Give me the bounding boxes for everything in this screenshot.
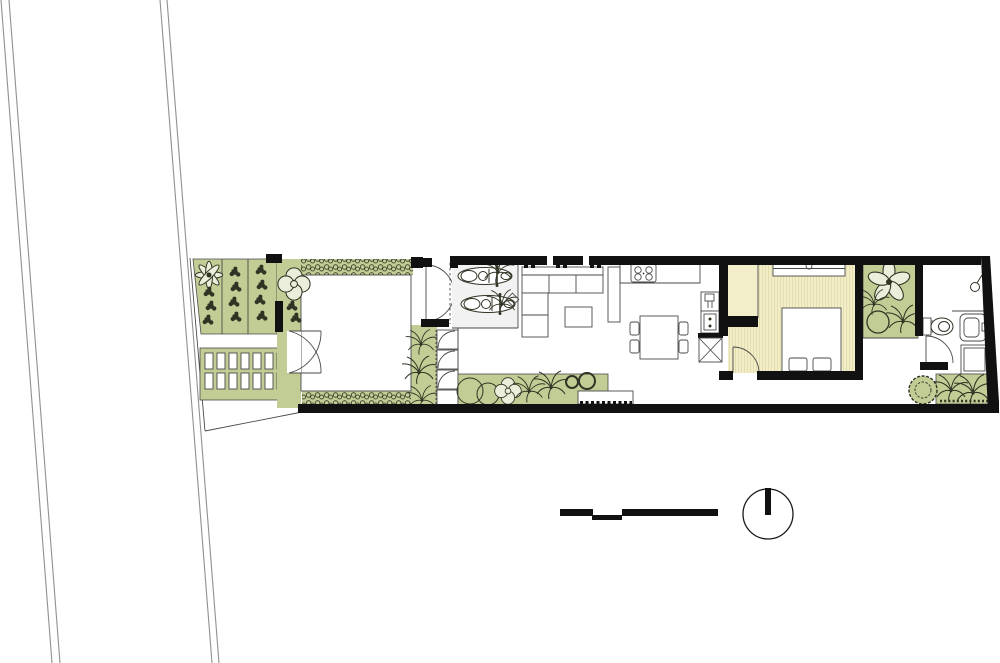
dining-chair bbox=[630, 322, 639, 335]
service-shaft bbox=[698, 333, 723, 362]
north-arrow-needle bbox=[765, 488, 771, 515]
dining-set bbox=[630, 316, 688, 359]
road-edges bbox=[1, 0, 219, 663]
cooktop-icon bbox=[631, 264, 656, 282]
kitchen-counter bbox=[620, 264, 700, 283]
dining-chair bbox=[679, 322, 688, 335]
scale-bar-segment bbox=[592, 515, 622, 520]
scooter-parking bbox=[452, 257, 519, 374]
bedroom-right-wall bbox=[855, 256, 863, 380]
kitchen bbox=[620, 264, 723, 362]
planter-strip bbox=[457, 371, 633, 405]
back-garden bbox=[909, 374, 997, 405]
road-edge-line bbox=[9, 0, 60, 663]
bedroom-bottom-wall bbox=[757, 371, 863, 380]
shower-tray bbox=[961, 345, 988, 374]
dining-table bbox=[640, 316, 678, 359]
flower-bed bbox=[193, 259, 277, 334]
bathroom-left-wall bbox=[915, 256, 923, 336]
faucet-unit bbox=[701, 292, 719, 311]
north-arrow bbox=[743, 488, 793, 539]
bottom-wall bbox=[298, 404, 999, 413]
coffee-table bbox=[565, 307, 592, 327]
entry-screen bbox=[437, 330, 458, 405]
hedge-top bbox=[301, 259, 413, 275]
floor-plan-drawing bbox=[0, 0, 1000, 663]
dining-chair bbox=[630, 340, 639, 353]
round-bush-icon bbox=[909, 376, 937, 404]
star-flower-icon bbox=[195, 261, 223, 289]
rear-garden bbox=[859, 260, 920, 338]
pillow bbox=[789, 358, 807, 371]
toilet-icon bbox=[923, 318, 953, 335]
top-wall bbox=[450, 256, 981, 265]
floor-plan-canvas bbox=[0, 0, 1000, 663]
double-bed bbox=[782, 308, 841, 374]
living-room bbox=[522, 267, 620, 337]
dining-chair bbox=[679, 340, 688, 353]
scale-bar-segment bbox=[622, 509, 718, 516]
washbasin-icon bbox=[952, 311, 989, 341]
courtyard bbox=[277, 259, 437, 411]
sink-icon bbox=[701, 311, 719, 333]
scale-bar-segment bbox=[560, 509, 593, 516]
bathroom-door bbox=[926, 336, 953, 363]
paving-grid bbox=[200, 348, 290, 400]
shower-head-icon bbox=[971, 275, 983, 292]
bathroom bbox=[923, 275, 989, 374]
road-edge-line bbox=[1, 0, 52, 663]
bedroom-nook bbox=[728, 264, 758, 318]
entry-doors bbox=[426, 263, 454, 324]
tv-cabinet bbox=[608, 267, 620, 322]
pillow bbox=[813, 358, 831, 371]
scale-bar bbox=[560, 509, 718, 520]
